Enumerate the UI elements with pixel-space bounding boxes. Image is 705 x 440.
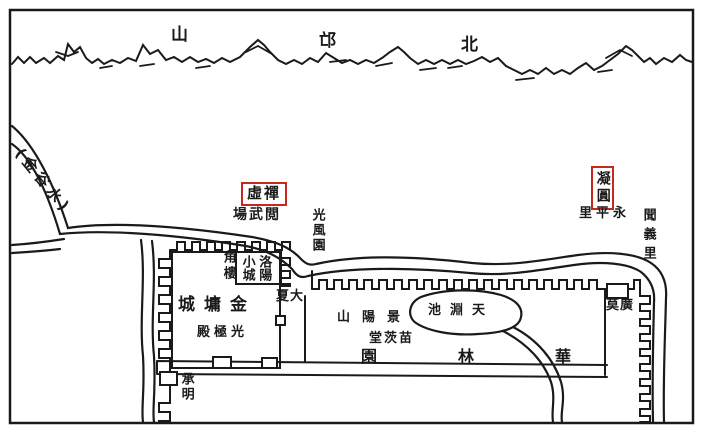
label-hualin-garden: 園 林 華: [361, 349, 571, 366]
hualin-char-hua: 華: [555, 349, 571, 366]
hualin-char-lin: 林: [458, 349, 474, 366]
hualin-char-yuan: 園: [361, 349, 377, 366]
mountain-char-mang: 邙: [319, 33, 336, 51]
red-frame-ningyuan-temple: 凝圓: [591, 166, 614, 210]
label-daxia-gate: 夏大: [276, 290, 304, 304]
label-chengming-gate: 承明: [179, 372, 193, 402]
label-guangfengyuan: 光風園: [310, 208, 324, 253]
label-guangmo-gate: 莫廣: [606, 299, 634, 313]
label-xiaocheng-right-column: 洛陽: [257, 255, 271, 281]
label-guangjidian: 殿極光: [197, 326, 248, 340]
label-yongping-ward: 里平永: [579, 207, 630, 221]
red-frame-chanxu-temple: 虛禪: [241, 182, 287, 206]
mountain-char-shan: 山: [171, 27, 188, 45]
label-jinyongcheng: 城墉金: [178, 297, 256, 315]
label-jiaolou: 角樓: [221, 250, 235, 282]
map-page: 山 邙 北 (金谷水) 虛禪 凝圓 場武閲 光風園 小城 洛陽 角樓 城墉金 殿…: [0, 0, 705, 440]
label-jingyang-hill: 山陽景: [337, 311, 412, 325]
label-yuewuchang: 場武閲: [233, 208, 281, 223]
label-miaocitang: 堂茨苗: [369, 332, 414, 346]
label-wenyi-ward: 聞義里: [641, 208, 655, 265]
label-luoyang-xiaocheng: 小城 洛陽: [240, 255, 270, 281]
mountain-ridge: [12, 40, 692, 80]
mountain-char-bei: 北: [461, 37, 478, 55]
label-tianyuan-pond: 池淵天: [428, 304, 494, 318]
label-xiaocheng-left-column: 小城: [240, 255, 254, 281]
